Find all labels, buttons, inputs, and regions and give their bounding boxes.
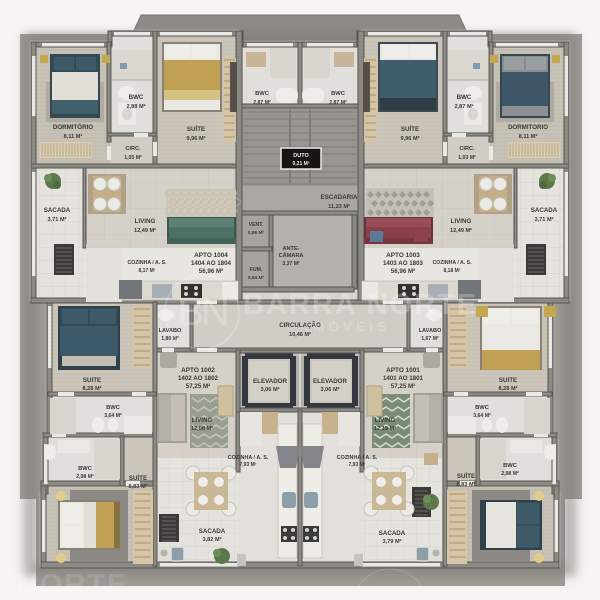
svg-text:8,83 M²: 8,83 M² <box>129 483 148 490</box>
svg-text:SUÍTE: SUÍTE <box>401 125 419 133</box>
svg-text:8,17 M²: 8,17 M² <box>139 268 156 274</box>
svg-text:3,37 M²: 3,37 M² <box>282 261 300 267</box>
svg-text:3,79 M²: 3,79 M² <box>383 538 402 545</box>
svg-text:8,83 M²: 8,83 M² <box>457 481 476 488</box>
svg-text:9,96 M²: 9,96 M² <box>401 135 420 142</box>
svg-text:LIVING: LIVING <box>135 218 156 225</box>
svg-text:FUM.: FUM. <box>250 267 263 273</box>
svg-text:SUITE: SUITE <box>83 377 101 384</box>
svg-text:1403 AO 1803: 1403 AO 1803 <box>383 260 424 267</box>
svg-text:1401 AO 1801: 1401 AO 1801 <box>383 375 424 382</box>
svg-text:APTO 1003: APTO 1003 <box>386 252 420 259</box>
svg-text:0,86 M²: 0,86 M² <box>248 230 265 236</box>
svg-text:SACADA: SACADA <box>379 530 406 537</box>
svg-text:BWC: BWC <box>106 405 121 411</box>
svg-text:3,82 M²: 3,82 M² <box>203 536 222 543</box>
svg-text:56,96 M²: 56,96 M² <box>391 268 415 275</box>
svg-text:A NORTE: A NORTE <box>0 569 128 600</box>
svg-text:3,71 M²: 3,71 M² <box>48 216 67 223</box>
svg-text:BN: BN <box>177 290 227 334</box>
svg-text:CIRC.: CIRC. <box>125 146 141 152</box>
svg-text:COZINHA / A. S.: COZINHA / A. S. <box>228 455 269 461</box>
svg-text:12,49 M²: 12,49 M² <box>450 227 472 234</box>
svg-text:IMÓVEIS: IMÓVEIS <box>305 319 391 334</box>
svg-text:SUITE: SUITE <box>499 377 517 384</box>
svg-text:2,98 M²: 2,98 M² <box>501 471 519 477</box>
svg-text:BWC: BWC <box>475 405 490 411</box>
svg-text:7,93 M²: 7,93 M² <box>240 462 257 468</box>
svg-text:9,96 M²: 9,96 M² <box>187 135 206 142</box>
svg-text:3,06 M²: 3,06 M² <box>321 386 340 393</box>
svg-text:1404 AO 1804: 1404 AO 1804 <box>191 260 232 267</box>
svg-text:BWC: BWC <box>255 91 270 97</box>
svg-text:BWC: BWC <box>503 463 518 469</box>
svg-text:1402 AO 1802: 1402 AO 1802 <box>178 375 219 382</box>
svg-text:LAVABO: LAVABO <box>419 328 442 334</box>
svg-text:SUÍTE: SUÍTE <box>187 125 205 133</box>
svg-text:LIVING: LIVING <box>192 417 213 424</box>
svg-text:SACADA: SACADA <box>199 528 226 535</box>
svg-text:LIVING: LIVING <box>375 417 396 424</box>
svg-text:3,71 M²: 3,71 M² <box>535 216 554 223</box>
svg-text:APTO 1002: APTO 1002 <box>181 367 215 374</box>
svg-text:COZINHA / A. S.: COZINHA / A. S. <box>432 260 472 266</box>
svg-text:57,25 M²: 57,25 M² <box>186 383 210 390</box>
svg-text:7,93 M²: 7,93 M² <box>349 462 366 468</box>
svg-text:2,87 M²: 2,87 M² <box>329 100 347 106</box>
svg-text:ANTE-: ANTE- <box>282 246 299 252</box>
svg-text:8,11 M²: 8,11 M² <box>64 133 83 140</box>
svg-text:BARRA NORTE: BARRA NORTE <box>243 289 478 321</box>
svg-text:8,28 M²: 8,28 M² <box>499 385 518 392</box>
svg-text:SACADA: SACADA <box>44 207 71 214</box>
svg-text:0,94 M²: 0,94 M² <box>248 275 265 281</box>
svg-text:56,96 M²: 56,96 M² <box>199 268 223 275</box>
svg-text:2,98 M²: 2,98 M² <box>76 474 94 480</box>
svg-text:12,49 M²: 12,49 M² <box>134 227 156 234</box>
svg-text:ELEVADOR: ELEVADOR <box>313 378 347 385</box>
svg-text:8,18 M²: 8,18 M² <box>444 268 461 274</box>
svg-text:SUÍTE: SUÍTE <box>129 474 147 482</box>
svg-text:SACADA: SACADA <box>531 207 558 214</box>
svg-text:1,05 M²: 1,05 M² <box>124 155 142 161</box>
svg-text:CÂMARA: CÂMARA <box>279 252 304 259</box>
svg-text:8,11 M²: 8,11 M² <box>519 133 538 140</box>
svg-text:LIVING: LIVING <box>451 218 472 225</box>
svg-text:1,03 M²: 1,03 M² <box>458 155 476 161</box>
svg-text:12,19 M²: 12,19 M² <box>374 425 396 432</box>
svg-text:3,64 M²: 3,64 M² <box>473 413 491 419</box>
svg-text:BWC: BWC <box>331 91 346 97</box>
svg-text:BWC: BWC <box>129 94 144 101</box>
svg-text:APTO 1004: APTO 1004 <box>194 252 228 259</box>
svg-text:DORMITÓRIO: DORMITÓRIO <box>53 123 93 131</box>
svg-text:3,06 M²: 3,06 M² <box>261 386 280 393</box>
svg-text:COZINHA I A. S.: COZINHA I A. S. <box>337 455 378 461</box>
svg-text:8,28 M²: 8,28 M² <box>83 385 102 392</box>
svg-text:2,88 M²: 2,88 M² <box>127 103 146 110</box>
svg-text:VENT.: VENT. <box>249 222 264 228</box>
svg-text:COZINHA / A. S.: COZINHA / A. S. <box>127 260 167 266</box>
svg-text:3,64 M²: 3,64 M² <box>104 413 122 419</box>
svg-text:1,67 M²: 1,67 M² <box>421 336 439 342</box>
svg-text:APTO 1001: APTO 1001 <box>386 367 420 374</box>
svg-text:2,87 M²: 2,87 M² <box>253 100 271 106</box>
svg-text:BWC: BWC <box>78 466 93 472</box>
svg-text:2,87 M²: 2,87 M² <box>455 103 474 110</box>
svg-text:57,25 M²: 57,25 M² <box>391 383 415 390</box>
svg-text:11,23 M²: 11,23 M² <box>328 203 350 210</box>
svg-text:CIRC.: CIRC. <box>459 146 475 152</box>
svg-text:DORMITORIO: DORMITORIO <box>508 124 548 131</box>
svg-text:ELEVADOR: ELEVADOR <box>253 378 287 385</box>
svg-text:ESCADARIA: ESCADARIA <box>321 194 358 201</box>
svg-text:BWC: BWC <box>457 94 472 101</box>
svg-text:12,08 M²: 12,08 M² <box>191 425 213 432</box>
svg-text:SUÍTE: SUÍTE <box>457 472 475 480</box>
